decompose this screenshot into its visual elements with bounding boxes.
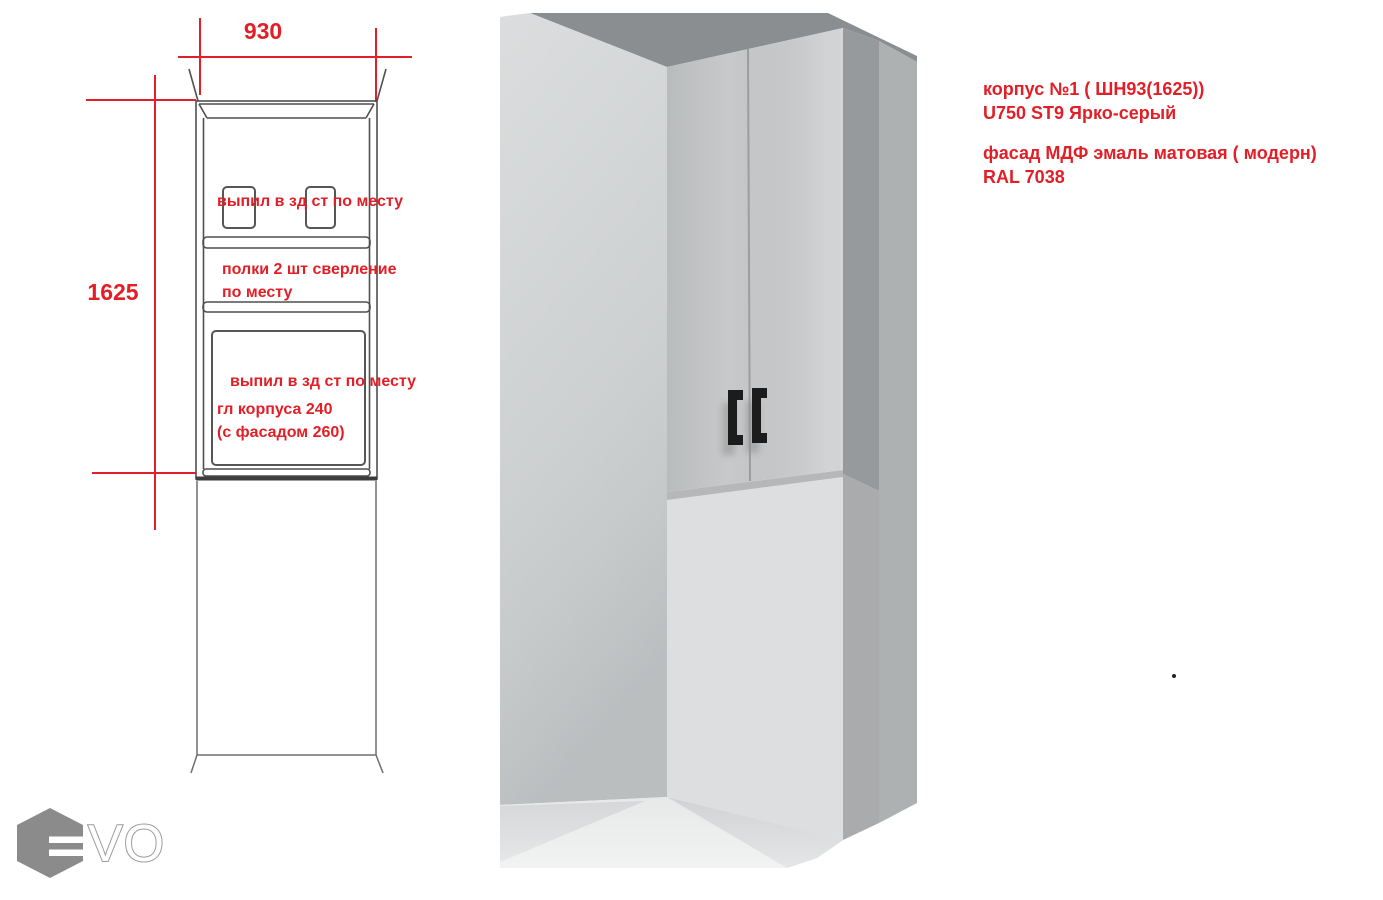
crown-slant-left: [199, 104, 207, 118]
render-side-panel-lower: [843, 474, 879, 840]
note-shelves-line2: по месту: [222, 284, 293, 301]
render-left-wall-shading: [500, 13, 667, 805]
lower-open-section: [197, 481, 376, 755]
stray-dot: [1172, 674, 1176, 678]
lower-compartment-frame: [212, 331, 365, 465]
note-back-cut-top: выпил в зд ст по месту: [217, 193, 403, 210]
spec-annotations: корпус №1 ( ШН93(1625)) U750 ST9 Ярко-се…: [983, 77, 1317, 189]
note-shelves-line1: полки 2 шт сверление: [222, 261, 397, 278]
top-flare-right: [377, 69, 386, 101]
note-back-cut-bottom: выпил в зд ст по месту: [230, 373, 416, 390]
cabinet-3d-render: [500, 13, 917, 868]
note-depth-line2: (с фасадом 260): [217, 424, 345, 441]
base-heavy-line: [196, 477, 377, 481]
design-sheet: 930 1625 выпил в зд ст по месту полки 2 …: [0, 0, 1383, 900]
front-elevation-drawing: 930 1625 выпил в зд ст по месту полки 2 …: [86, 18, 416, 773]
foot-flare-left: [191, 755, 197, 773]
bottom-band: [203, 469, 370, 476]
shelf-band-1: [203, 237, 370, 248]
logo-text: VO: [88, 815, 165, 873]
height-dim-label: 1625: [87, 279, 138, 305]
evo-logo: VO: [17, 808, 165, 878]
note-depth-line1: гл корпуса 240: [217, 401, 333, 418]
spec-body-color-line: U750 ST9 Ярко-серый: [983, 101, 1317, 125]
spec-facade-line: фасад МДФ эмаль матовая ( модерн): [983, 141, 1317, 165]
render-right-wall-strip: [879, 41, 917, 823]
width-dimension: 930: [178, 18, 412, 102]
crown-slant-right: [366, 104, 374, 118]
spec-ral-line: RAL 7038: [983, 165, 1317, 189]
foot-flare-right: [376, 755, 383, 773]
render-side-panel-upper: [843, 28, 879, 491]
height-dimension: 1625: [86, 75, 196, 530]
logo-stripe-2: [49, 850, 88, 857]
width-dim-label: 930: [244, 18, 282, 44]
render-wall-below-cabinet: [667, 477, 843, 840]
shelf-band-2: [203, 302, 370, 312]
top-flare-left: [189, 69, 198, 101]
spec-body-line: корпус №1 ( ШН93(1625)): [983, 77, 1317, 101]
logo-stripe-1: [49, 837, 88, 844]
